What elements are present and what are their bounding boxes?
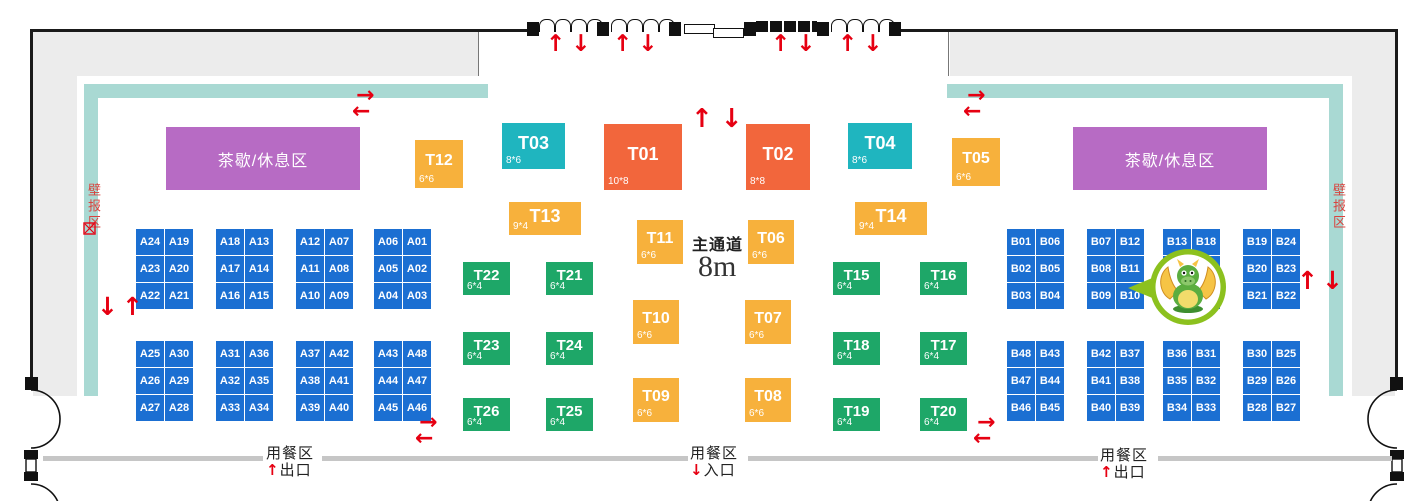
booth-size: 6*4 — [837, 351, 852, 362]
dining-zone-label: 用餐区 — [266, 446, 314, 462]
booth-cell-A08[interactable]: A08 — [325, 256, 353, 282]
booth-cell-B39[interactable]: B39 — [1116, 395, 1144, 421]
booth-label: T13 — [529, 207, 560, 225]
booth-cell-A31[interactable]: A31 — [216, 341, 244, 367]
booth-cell-B36[interactable]: B36 — [1163, 341, 1191, 367]
booth-cell-A13[interactable]: A13 — [245, 229, 273, 255]
booth-cell-A33[interactable]: A33 — [216, 395, 244, 421]
booth-T16[interactable]: T166*4 — [920, 262, 967, 295]
booth-cell-A06[interactable]: A06 — [374, 229, 402, 255]
booth-cell-B45[interactable]: B45 — [1036, 395, 1064, 421]
booth-cell-B44[interactable]: B44 — [1036, 368, 1064, 394]
door-post — [527, 22, 539, 36]
dining-divider — [748, 456, 1098, 461]
booth-cell-A15[interactable]: A15 — [245, 283, 273, 309]
booth-cell-A40[interactable]: A40 — [325, 395, 353, 421]
booth-cell-B32[interactable]: B32 — [1192, 368, 1220, 394]
booth-cell-B26[interactable]: B26 — [1272, 368, 1300, 394]
booth-T14[interactable]: T149*4 — [855, 202, 927, 235]
booth-cell-A45[interactable]: A45 — [374, 395, 402, 421]
booth-cell-B35[interactable]: B35 — [1163, 368, 1191, 394]
booth-T17[interactable]: T176*4 — [920, 332, 967, 365]
poster-band-right — [1329, 84, 1343, 396]
booth-block-A-bot-3: A37A42A38A41A39A40 — [296, 341, 353, 421]
exit-label: 出口 — [280, 463, 312, 479]
booth-cell-B25[interactable]: B25 — [1272, 341, 1300, 367]
booth-T04[interactable]: T048*6 — [848, 123, 912, 169]
booth-cell-A24[interactable]: A24 — [136, 229, 164, 255]
booth-size: 6*4 — [837, 281, 852, 292]
booth-size: 6*6 — [752, 250, 767, 261]
booth-cell-B27[interactable]: B27 — [1272, 395, 1300, 421]
booth-size: 6*6 — [637, 408, 652, 419]
booth-cell-B28[interactable]: B28 — [1243, 395, 1271, 421]
booth-cell-A30[interactable]: A30 — [165, 341, 193, 367]
booth-T11[interactable]: T116*6 — [637, 220, 683, 264]
dining-zone-label: 用餐区 — [1100, 448, 1148, 464]
flow-arrow: ← — [973, 428, 991, 450]
booth-cell-A38[interactable]: A38 — [296, 368, 324, 394]
emergency-marker-icon — [83, 222, 96, 235]
entrance-arrow-icon: ↓ — [690, 461, 704, 479]
booth-cell-B31[interactable]: B31 — [1192, 341, 1220, 367]
booth-size: 6*6 — [749, 408, 764, 419]
booth-cell-B06[interactable]: B06 — [1036, 229, 1064, 255]
booth-size: 6*4 — [467, 281, 482, 292]
floor-plan: 壁报区 壁报区 茶歇/休息区 — [0, 0, 1428, 501]
booth-size: 6*4 — [924, 281, 939, 292]
outer-wall-right — [1395, 29, 1398, 385]
booth-size: 6*4 — [467, 351, 482, 362]
booth-size: 6*4 — [924, 351, 939, 362]
booth-cell-B42[interactable]: B42 — [1087, 341, 1115, 367]
booth-block-A-top-2: A18A13A17A14A16A15 — [216, 229, 273, 309]
booth-size: 9*4 — [859, 221, 874, 232]
booth-cell-A28[interactable]: A28 — [165, 395, 193, 421]
booth-size: 6*4 — [837, 417, 852, 428]
booth-T19[interactable]: T196*4 — [833, 398, 880, 431]
booth-size: 6*6 — [641, 250, 656, 261]
booth-size: 6*4 — [924, 417, 939, 428]
booth-T25[interactable]: T256*4 — [546, 398, 593, 431]
booth-label: T05 — [962, 151, 990, 167]
booth-cell-A34[interactable]: A34 — [245, 395, 273, 421]
booth-cell-B19[interactable]: B19 — [1243, 229, 1271, 255]
booth-cell-B37[interactable]: B37 — [1116, 341, 1144, 367]
booth-cell-A20[interactable]: A20 — [165, 256, 193, 282]
booth-size: 6*6 — [956, 172, 971, 183]
booth-cell-B09[interactable]: B09 — [1087, 283, 1115, 309]
booth-block-A-top-3: A12A07A11A08A10A09 — [296, 229, 353, 309]
flow-arrow: ↓↑ — [97, 294, 147, 319]
booth-cell-A04[interactable]: A04 — [374, 283, 402, 309]
booth-T06[interactable]: T066*6 — [748, 220, 794, 264]
booth-cell-B41[interactable]: B41 — [1087, 368, 1115, 394]
booth-block-A-bot-2: A31A36A32A35A33A34 — [216, 341, 273, 421]
booth-cell-A14[interactable]: A14 — [245, 256, 273, 282]
booth-T23[interactable]: T236*4 — [463, 332, 510, 365]
booth-cell-B07[interactable]: B07 — [1087, 229, 1115, 255]
booth-label: T03 — [518, 134, 549, 152]
booth-cell-A27[interactable]: A27 — [136, 395, 164, 421]
booth-cell-B03[interactable]: B03 — [1007, 283, 1035, 309]
booth-size: 6*6 — [749, 330, 764, 341]
booth-label: T02 — [762, 145, 793, 163]
booth-size: 6*4 — [550, 281, 565, 292]
booth-cell-B38[interactable]: B38 — [1116, 368, 1144, 394]
booth-block-A-top-4: A06A01A05A02A04A03 — [374, 229, 431, 309]
booth-size: 6*4 — [467, 417, 482, 428]
poster-band-left — [84, 84, 98, 396]
booth-cell-A16[interactable]: A16 — [216, 283, 244, 309]
exit-arrow-icon: ↑ — [266, 461, 280, 479]
booth-cell-A18[interactable]: A18 — [216, 229, 244, 255]
booth-size: 8*6 — [506, 155, 521, 166]
booth-cell-B04[interactable]: B04 — [1036, 283, 1064, 309]
booth-cell-A39[interactable]: A39 — [296, 395, 324, 421]
booth-T21[interactable]: T216*4 — [546, 262, 593, 295]
booth-label: T09 — [642, 389, 670, 405]
entrance-label: 入口 — [704, 463, 736, 479]
booth-block-A-bot-4: A43A48A44A47A45A46 — [374, 341, 431, 421]
booth-cell-B30[interactable]: B30 — [1243, 341, 1271, 367]
flow-arrow: ↑↓ — [771, 33, 822, 56]
flow-arrow: ← — [415, 428, 433, 450]
booth-T20[interactable]: T206*4 — [920, 398, 967, 431]
booth-cell-A41[interactable]: A41 — [325, 368, 353, 394]
booth-cell-A05[interactable]: A05 — [374, 256, 402, 282]
booth-cell-A35[interactable]: A35 — [245, 368, 273, 394]
booth-T07[interactable]: T076*6 — [745, 300, 791, 344]
booth-block-B-bot-3: B36B31B35B32B34B33 — [1163, 341, 1220, 421]
booth-cell-B47[interactable]: B47 — [1007, 368, 1035, 394]
booth-label: T06 — [757, 231, 785, 247]
poster-band-top-left — [84, 84, 488, 98]
booth-T12[interactable]: T126*6 — [415, 140, 463, 188]
booth-cell-B20[interactable]: B20 — [1243, 256, 1271, 282]
booth-T03[interactable]: T038*6 — [502, 123, 565, 169]
booth-cell-A02[interactable]: A02 — [403, 256, 431, 282]
booth-block-B-bot-4: B30B25B29B26B28B27 — [1243, 341, 1300, 421]
dining-label-center: 用餐区 ↓入口 — [690, 446, 738, 479]
sliding-door — [684, 24, 715, 34]
booth-cell-B08[interactable]: B08 — [1087, 256, 1115, 282]
booth-label: T04 — [864, 134, 895, 152]
booth-cell-B33[interactable]: B33 — [1192, 395, 1220, 421]
corner-door-right-icon — [1335, 374, 1415, 501]
booth-cell-B21[interactable]: B21 — [1243, 283, 1271, 309]
flow-arrow: ← — [352, 101, 370, 123]
booth-cell-A23[interactable]: A23 — [136, 256, 164, 282]
flow-arrow: ↑↓ — [838, 33, 889, 56]
booth-block-B-top-4: B19B24B20B23B21B22 — [1243, 229, 1300, 309]
exit-arrow-icon: ↑ — [1100, 463, 1114, 481]
booth-cell-B24[interactable]: B24 — [1272, 229, 1300, 255]
flow-arrow: ↑↓ — [1297, 268, 1347, 293]
flow-arrow: ← — [963, 101, 981, 123]
booth-block-B-bot-1: B48B43B47B44B46B45 — [1007, 341, 1064, 421]
booth-T18[interactable]: T186*4 — [833, 332, 880, 365]
booth-size: 9*4 — [513, 221, 528, 232]
booth-T15[interactable]: T156*4 — [833, 262, 880, 295]
booth-cell-A21[interactable]: A21 — [165, 283, 193, 309]
booth-cell-B48[interactable]: B48 — [1007, 341, 1035, 367]
rest-area-right: 茶歇/休息区 — [1073, 127, 1267, 190]
booth-T09[interactable]: T096*6 — [633, 378, 679, 422]
booth-cell-B34[interactable]: B34 — [1163, 395, 1191, 421]
sliding-door — [713, 28, 744, 38]
booth-label: T11 — [647, 231, 674, 247]
booth-cell-A10[interactable]: A10 — [296, 283, 324, 309]
dining-divider — [322, 456, 688, 461]
booth-size: 6*4 — [550, 417, 565, 428]
flow-arrow: ↑↓ — [691, 106, 751, 132]
rest-area-label: 茶歇/休息区 — [1125, 147, 1215, 171]
booth-cell-A09[interactable]: A09 — [325, 283, 353, 309]
booth-size: 6*6 — [419, 174, 434, 185]
booth-T01[interactable]: T0110*8 — [604, 124, 682, 190]
booth-block-B-bot-2: B42B37B41B38B40B39 — [1087, 341, 1144, 421]
entrance-corridor-edge-left — [478, 32, 479, 76]
booth-cell-B46[interactable]: B46 — [1007, 395, 1035, 421]
wall-zone-right — [1352, 32, 1395, 396]
booth-cell-A01[interactable]: A01 — [403, 229, 431, 255]
booth-T08[interactable]: T086*6 — [745, 378, 791, 422]
booth-cell-A19[interactable]: A19 — [165, 229, 193, 255]
booth-cell-A42[interactable]: A42 — [325, 341, 353, 367]
booth-size: 8*6 — [852, 155, 867, 166]
door-post — [744, 22, 756, 36]
booth-label: T10 — [642, 311, 670, 327]
booth-cell-A43[interactable]: A43 — [374, 341, 402, 367]
booth-label: T14 — [875, 207, 906, 225]
booth-size: 6*4 — [550, 351, 565, 362]
booth-size: 10*8 — [608, 176, 629, 187]
wall-zone-left — [33, 32, 77, 396]
flow-arrow: ↑↓ — [546, 33, 597, 56]
booth-cell-B40[interactable]: B40 — [1087, 395, 1115, 421]
corner-door-left-icon — [13, 374, 93, 501]
booth-size: 6*6 — [637, 330, 652, 341]
booth-T02[interactable]: T028*8 — [746, 124, 810, 190]
dining-label-right: 用餐区 ↑出口 — [1100, 448, 1148, 481]
booth-T05[interactable]: T056*6 — [952, 138, 1000, 186]
booth-cell-B43[interactable]: B43 — [1036, 341, 1064, 367]
rest-area-label: 茶歇/休息区 — [218, 147, 308, 171]
booth-cell-B02[interactable]: B02 — [1007, 256, 1035, 282]
booth-cell-A29[interactable]: A29 — [165, 368, 193, 394]
booth-size: 8*8 — [750, 176, 765, 187]
booth-cell-B01[interactable]: B01 — [1007, 229, 1035, 255]
wall-zone-top-right — [950, 32, 1395, 76]
rest-area-left: 茶歇/休息区 — [166, 127, 360, 190]
booth-T26[interactable]: T266*4 — [463, 398, 510, 431]
booth-T13[interactable]: T139*4 — [509, 202, 581, 235]
booth-T24[interactable]: T246*4 — [546, 332, 593, 365]
booth-cell-B05[interactable]: B05 — [1036, 256, 1064, 282]
booth-cell-B29[interactable]: B29 — [1243, 368, 1271, 394]
booth-cell-A07[interactable]: A07 — [325, 229, 353, 255]
booth-cell-B22[interactable]: B22 — [1272, 283, 1300, 309]
booth-cell-A03[interactable]: A03 — [403, 283, 431, 309]
booth-label: T08 — [754, 389, 782, 405]
booth-label: T01 — [627, 145, 658, 163]
booth-cell-A25[interactable]: A25 — [136, 341, 164, 367]
main-aisle-width: 8m — [698, 250, 736, 284]
dining-label-left: 用餐区 ↑出口 — [266, 446, 314, 479]
booth-label: T07 — [754, 311, 782, 327]
booth-cell-B23[interactable]: B23 — [1272, 256, 1300, 282]
booth-T22[interactable]: T226*4 — [463, 262, 510, 295]
dining-divider — [1158, 456, 1392, 461]
poster-area-label-right: 壁报区 — [1329, 183, 1348, 231]
entrance-corridor-edge-right — [948, 32, 949, 76]
wall-zone-top-left — [33, 32, 478, 76]
booth-label: T12 — [425, 153, 453, 169]
booth-cell-A48[interactable]: A48 — [403, 341, 431, 367]
poster-band-top-right — [947, 84, 1343, 98]
booth-block-A-bot-1: A25A30A26A29A27A28 — [136, 341, 193, 421]
dining-zone-label: 用餐区 — [690, 446, 738, 462]
flow-arrow: ↑↓ — [613, 33, 664, 56]
booth-cell-A47[interactable]: A47 — [403, 368, 431, 394]
booth-cell-A12[interactable]: A12 — [296, 229, 324, 255]
dragon-mascot-pin[interactable] — [1124, 246, 1230, 328]
booth-cell-A11[interactable]: A11 — [296, 256, 324, 282]
booth-T10[interactable]: T106*6 — [633, 300, 679, 344]
booth-cell-A36[interactable]: A36 — [245, 341, 273, 367]
dining-divider — [43, 456, 263, 461]
booth-cell-A26[interactable]: A26 — [136, 368, 164, 394]
exit-label: 出口 — [1114, 465, 1146, 481]
booth-cell-A44[interactable]: A44 — [374, 368, 402, 394]
booth-cell-A17[interactable]: A17 — [216, 256, 244, 282]
booth-block-B-top-1: B01B06B02B05B03B04 — [1007, 229, 1064, 309]
booth-cell-A37[interactable]: A37 — [296, 341, 324, 367]
booth-cell-A32[interactable]: A32 — [216, 368, 244, 394]
